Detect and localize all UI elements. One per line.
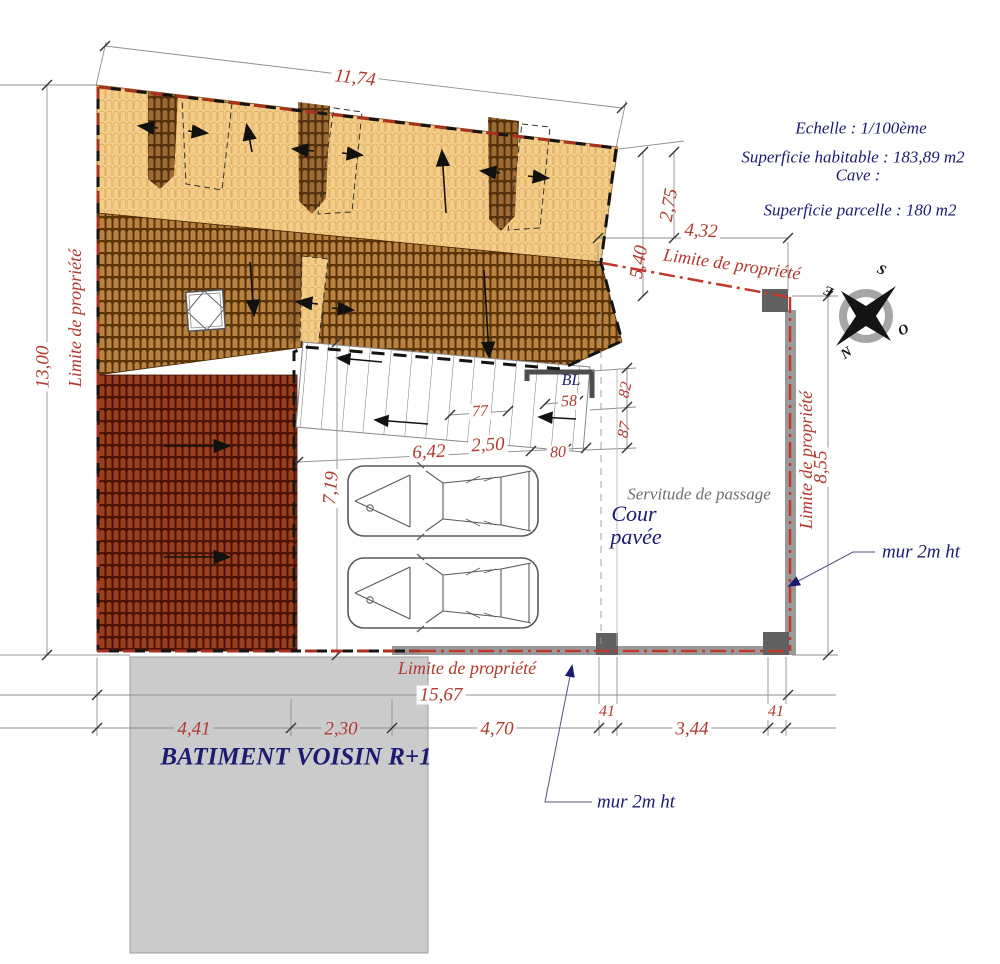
- mur-bottom-leader: [545, 666, 592, 802]
- limite-label-bottom: Limite de propriété: [398, 659, 536, 677]
- dim-left-height: 13,00: [34, 343, 53, 392]
- dim-87: 87: [616, 421, 635, 440]
- roof-valley-strip: [148, 91, 178, 189]
- neighbor-building: [130, 657, 428, 953]
- roof-valley-strip: [298, 102, 330, 214]
- dim-80: 80: [547, 444, 570, 461]
- mur-top-leader: [789, 552, 875, 586]
- skylight: [186, 290, 226, 331]
- dim-court-height: 7,19: [320, 468, 342, 509]
- parcel-area-note: Superficie parcelle : 180 m2: [764, 202, 957, 219]
- cour-pavee-label-line1: Cour: [611, 503, 656, 525]
- dim-432: 4,32: [681, 220, 721, 241]
- dim-441: 4,41: [174, 720, 213, 739]
- dim-470: 4,70: [477, 720, 516, 739]
- dim-82: 82: [617, 381, 636, 400]
- servitude-label: Servitude de passage: [627, 486, 771, 503]
- site-plan-drawing: [0, 0, 1000, 964]
- compass-rose-icon: [836, 286, 896, 346]
- car-icon-1: [348, 462, 538, 540]
- bl-label: BL: [562, 373, 581, 389]
- habitable-area-note: Superficie habitable : 183,89 m2: [741, 149, 964, 166]
- neighbor-building-label: BATIMENT VOISIN R+1: [160, 745, 431, 770]
- cave-note: Cave :: [836, 167, 881, 184]
- roof-darkred: [97, 375, 297, 651]
- dim-41-left: 41: [596, 704, 618, 720]
- dim-58: 58: [558, 393, 581, 410]
- cour-pavee-label-line2: pavée: [610, 526, 661, 548]
- mur-label-bottom: mur 2m ht: [597, 793, 675, 812]
- dim-77: 77: [469, 403, 492, 420]
- dim-total-width: 15,67: [417, 686, 466, 705]
- limite-label-left: Limite de propriété: [66, 249, 84, 387]
- dim-642: 6,42: [409, 441, 449, 462]
- limite-label-right: Limite de propriété: [797, 391, 815, 529]
- car-icon-2: [348, 554, 538, 632]
- dim-41-right: 41: [765, 704, 787, 720]
- site-plan-page: Echelle : 1/100ème Superficie habitable …: [0, 0, 1000, 964]
- dim-top-width: 11,74: [330, 66, 379, 90]
- dim-230: 2,30: [321, 720, 360, 739]
- mur-label-top: mur 2m ht: [882, 543, 960, 562]
- dim-344: 3,44: [672, 720, 711, 739]
- dim-250: 2,50: [468, 434, 508, 455]
- leader-lines: [545, 552, 875, 802]
- scale-note: Echelle : 1/100ème: [795, 120, 926, 137]
